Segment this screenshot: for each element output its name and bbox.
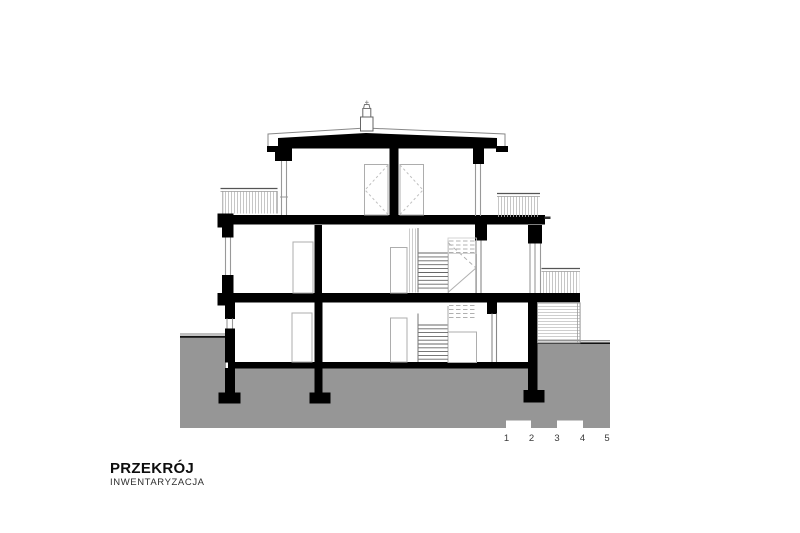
door-first-stair-side: [448, 241, 476, 294]
scale-bar-labels: 1 2 3 4 5: [504, 433, 610, 444]
title-block: PRZEKRÓJ INWENTARYZACJA: [110, 461, 205, 488]
window-attic-left: [280, 161, 288, 215]
ground-mass: [180, 334, 610, 428]
slab-first-floor: [222, 293, 580, 303]
ground-fill: [180, 337, 610, 428]
drawing-sheet: 1 2 3 4 5 PRZEKRÓJ INWENTARYZACJA: [0, 0, 800, 533]
roof: [267, 101, 508, 153]
scale-label-1: 1: [504, 433, 509, 444]
building-section-drawing: 1 2 3 4 5: [0, 0, 800, 533]
door-ground-stair-side: [448, 332, 477, 363]
stair-dashed-flight-ground: [449, 306, 477, 318]
slab-ground-floor: [228, 362, 537, 369]
door-attic-left: [365, 165, 389, 216]
chimney: [361, 101, 374, 132]
stair-dashed-flight-first: [449, 241, 476, 253]
scale-label-5: 5: [604, 433, 609, 444]
chimney-finial: [365, 101, 369, 105]
drawing-subtitle: INWENTARYZACJA: [110, 478, 205, 488]
window-attic-right: [476, 164, 481, 216]
scale-label-4: 4: [580, 433, 585, 444]
stair-wall-ground: [492, 314, 497, 363]
window-ground-left: [227, 319, 233, 329]
drawing-title: PRZEKRÓJ: [110, 461, 205, 476]
stair-flight-first: [410, 228, 477, 293]
exterior-stair-block-right: [538, 303, 581, 344]
railing-balcony-left: [221, 189, 278, 214]
window-first-right: [530, 244, 541, 294]
walls: [222, 147, 542, 391]
railing-terrace-right-lower: [542, 269, 581, 294]
door-first-landing: [391, 248, 408, 294]
stair-flight-ground: [418, 306, 477, 363]
window-first-left: [226, 238, 231, 276]
stair-railing-first: [410, 229, 416, 293]
railing-terrace-right-upper: [497, 194, 540, 218]
floor-slabs: [218, 214, 581, 369]
scale-label-2: 2: [529, 433, 534, 444]
door-ground-landing: [391, 318, 408, 362]
door-first-room-left: [293, 242, 313, 293]
scale-label-3: 3: [554, 433, 559, 444]
door-attic-right: [400, 165, 424, 216]
door-ground-room-left: [292, 313, 312, 362]
roof-eave-tab-right: [496, 146, 508, 152]
roof-slab: [278, 133, 497, 148]
slab-second-floor: [222, 215, 545, 225]
